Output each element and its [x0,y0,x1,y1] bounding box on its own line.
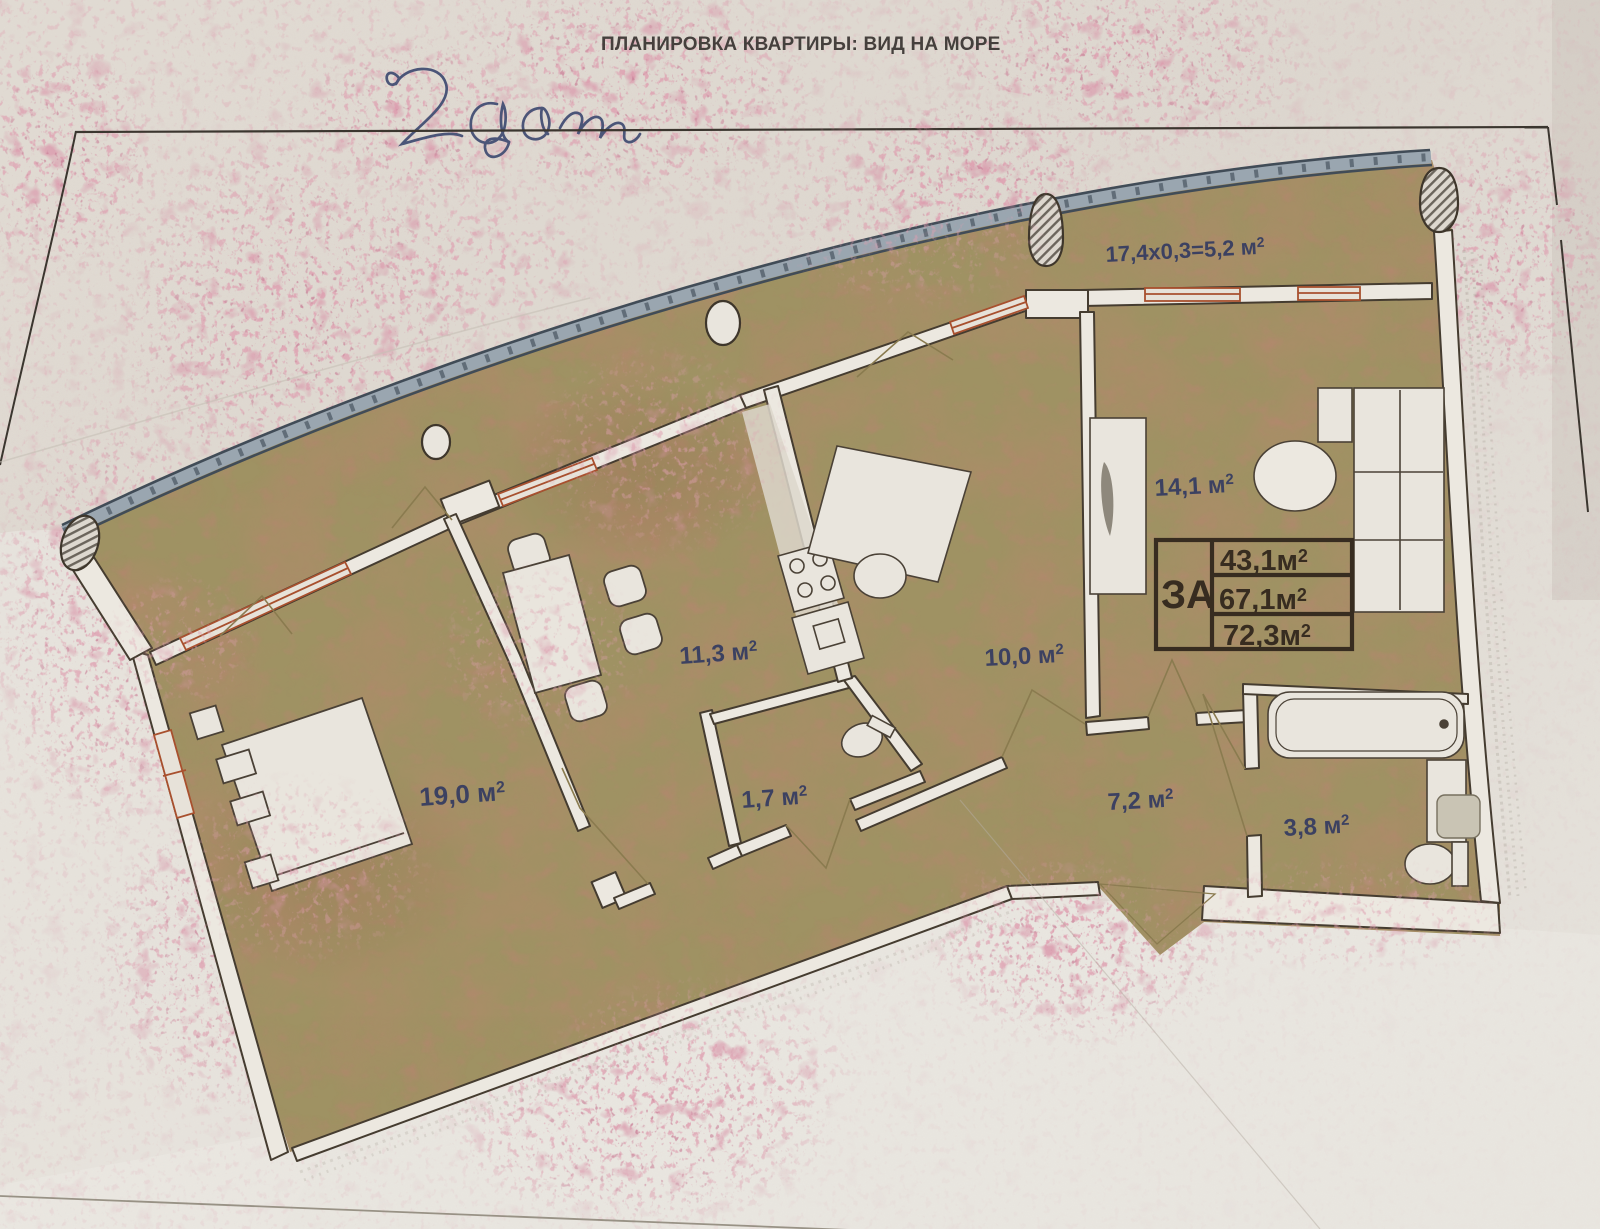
svg-text:67,1м2: 67,1м2 [1219,584,1307,616]
svg-text:72,3м2: 72,3м2 [1223,620,1311,652]
svg-text:3,8 м2: 3,8 м2 [1283,812,1350,842]
svg-text:11,3 м2: 11,3 м2 [679,638,759,670]
svg-text:43,1м2: 43,1м2 [1220,545,1308,577]
svg-text:1,7 м2: 1,7 м2 [741,782,809,814]
svg-text:10,0 м2: 10,0 м2 [984,641,1065,672]
svg-text:14,1 м2: 14,1 м2 [1154,471,1235,502]
svg-text:19,0 м2: 19,0 м2 [418,776,506,812]
svg-text:7,2 м2: 7,2 м2 [1107,786,1174,816]
svg-text:ЗА: ЗА [1161,573,1215,617]
